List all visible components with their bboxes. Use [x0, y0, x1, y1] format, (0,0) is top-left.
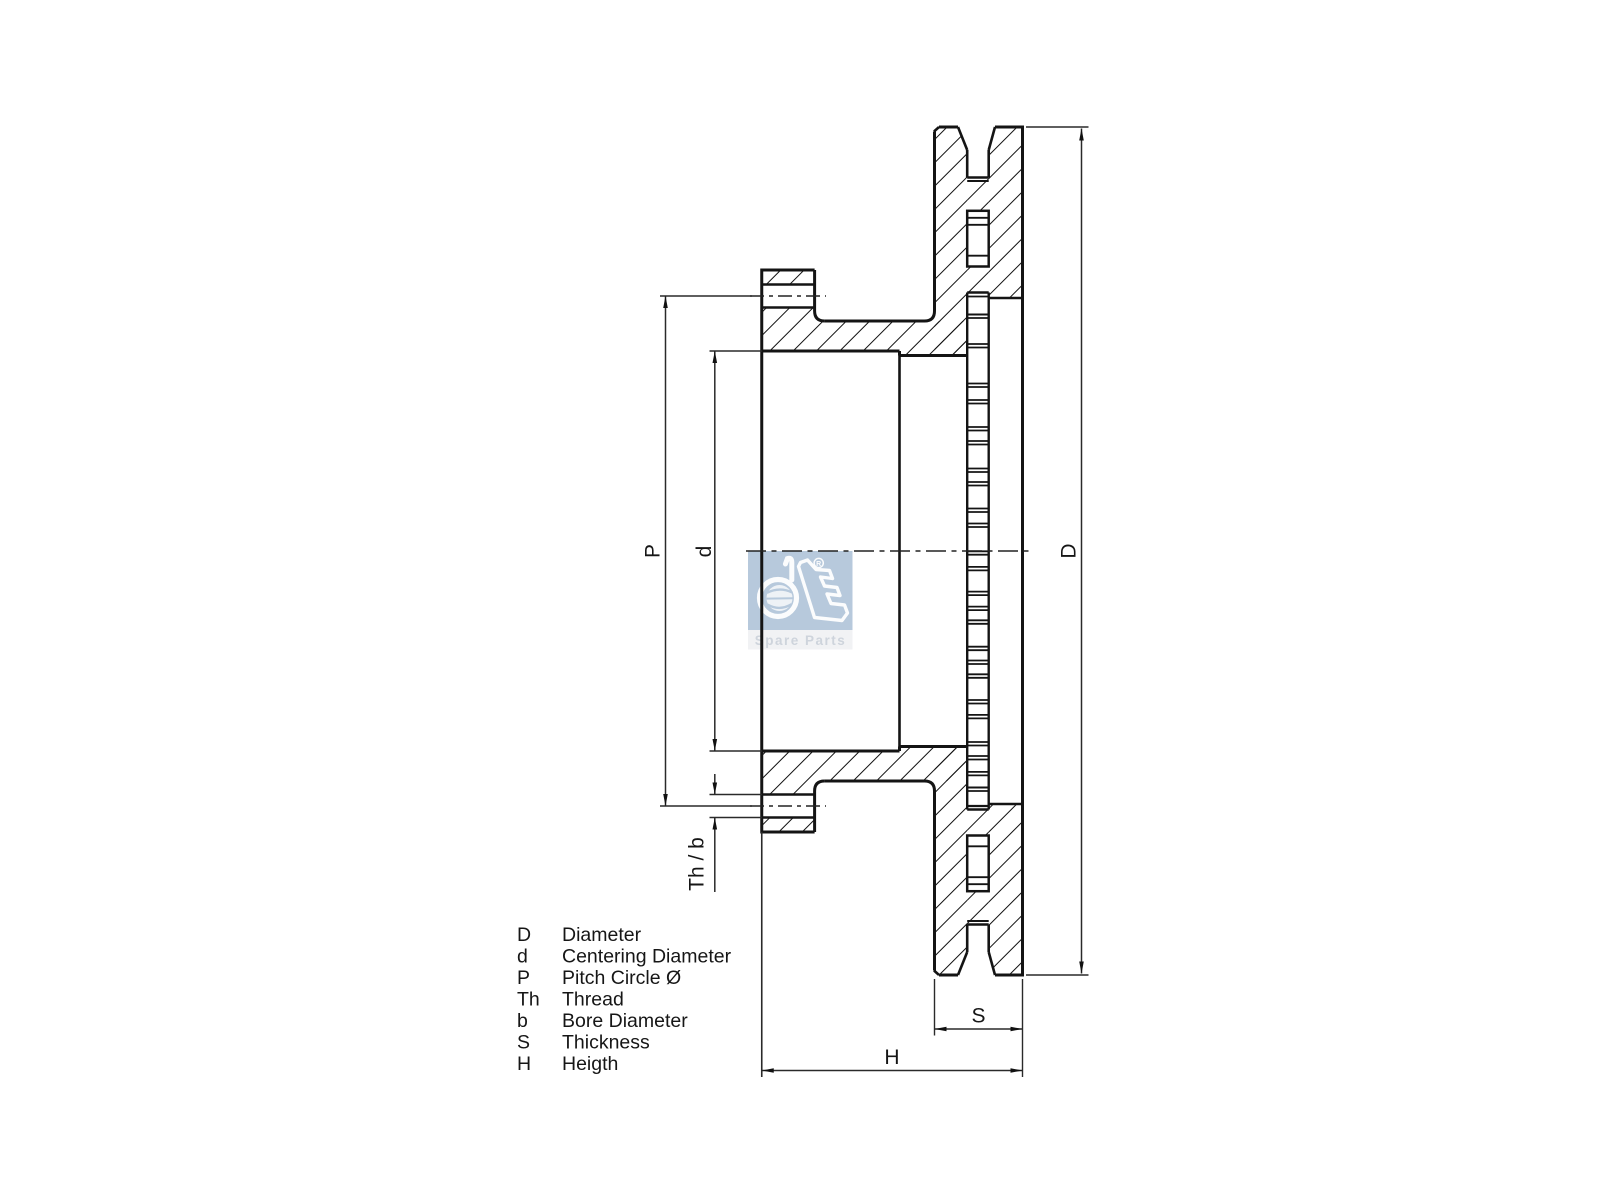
svg-text:Bore Diameter: Bore Diameter [562, 1010, 688, 1032]
svg-text:Th / b: Th / b [686, 837, 709, 891]
svg-text:d: d [517, 946, 528, 968]
svg-text:Spare Parts: Spare Parts [755, 633, 847, 648]
svg-text:R: R [816, 561, 821, 568]
svg-text:Thickness: Thickness [562, 1032, 650, 1054]
svg-text:Th: Th [517, 989, 540, 1011]
svg-text:d: d [693, 546, 716, 558]
svg-text:P: P [517, 967, 530, 989]
svg-text:Diameter: Diameter [562, 924, 642, 946]
svg-text:S: S [517, 1032, 530, 1054]
svg-text:Pitch Circle Ø: Pitch Circle Ø [562, 967, 681, 989]
svg-text:S: S [971, 1004, 985, 1027]
svg-text:Centering Diameter: Centering Diameter [562, 946, 732, 968]
svg-text:D: D [1058, 543, 1081, 558]
svg-text:H: H [884, 1046, 899, 1069]
svg-text:D: D [517, 924, 531, 946]
svg-text:H: H [517, 1053, 531, 1075]
svg-text:Heigth: Heigth [562, 1053, 618, 1075]
svg-text:Thread: Thread [562, 989, 624, 1011]
svg-text:b: b [517, 1010, 528, 1032]
svg-text:P: P [642, 544, 665, 558]
